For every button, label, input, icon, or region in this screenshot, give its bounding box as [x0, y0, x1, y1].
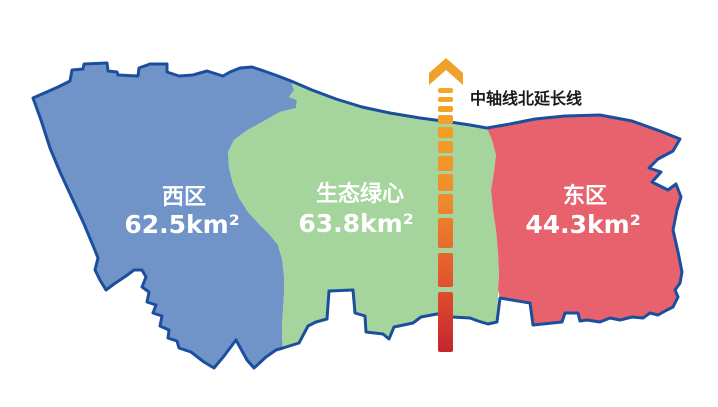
west-district-area: 62.5km²: [124, 210, 239, 239]
green-heart-area: 63.8km²: [298, 209, 413, 238]
axis-dash: [438, 127, 453, 138]
axis-label: 中轴线北延长线: [470, 89, 582, 108]
axis-dash: [438, 141, 453, 153]
east-district-label: 东区: [563, 183, 607, 209]
axis-dash: [438, 156, 453, 171]
district-map-infographic: 中轴线北延长线 西区 62.5km² 生态绿心 63.8km² 东区 44.3k…: [0, 0, 718, 407]
green-heart-label: 生态绿心: [316, 181, 404, 207]
east-district-area: 44.3km²: [525, 210, 640, 239]
axis-dash: [438, 174, 453, 191]
axis-dash: [438, 292, 453, 352]
axis-dash: [438, 194, 453, 214]
west-district-label: 西区: [162, 185, 206, 210]
axis-dash: [438, 115, 453, 124]
axis-dash: [438, 253, 453, 287]
region-labels: 西区 62.5km² 生态绿心 63.8km² 东区 44.3km²: [124, 181, 640, 239]
axis-dash: [438, 218, 453, 248]
axis-dashed-line: [438, 88, 453, 352]
map-canvas: 中轴线北延长线 西区 62.5km² 生态绿心 63.8km² 东区 44.3k…: [0, 0, 718, 407]
axis-dash: [438, 97, 453, 102]
axis-dash: [438, 106, 453, 112]
axis-dash: [438, 88, 453, 93]
up-arrow-icon: [429, 58, 463, 85]
